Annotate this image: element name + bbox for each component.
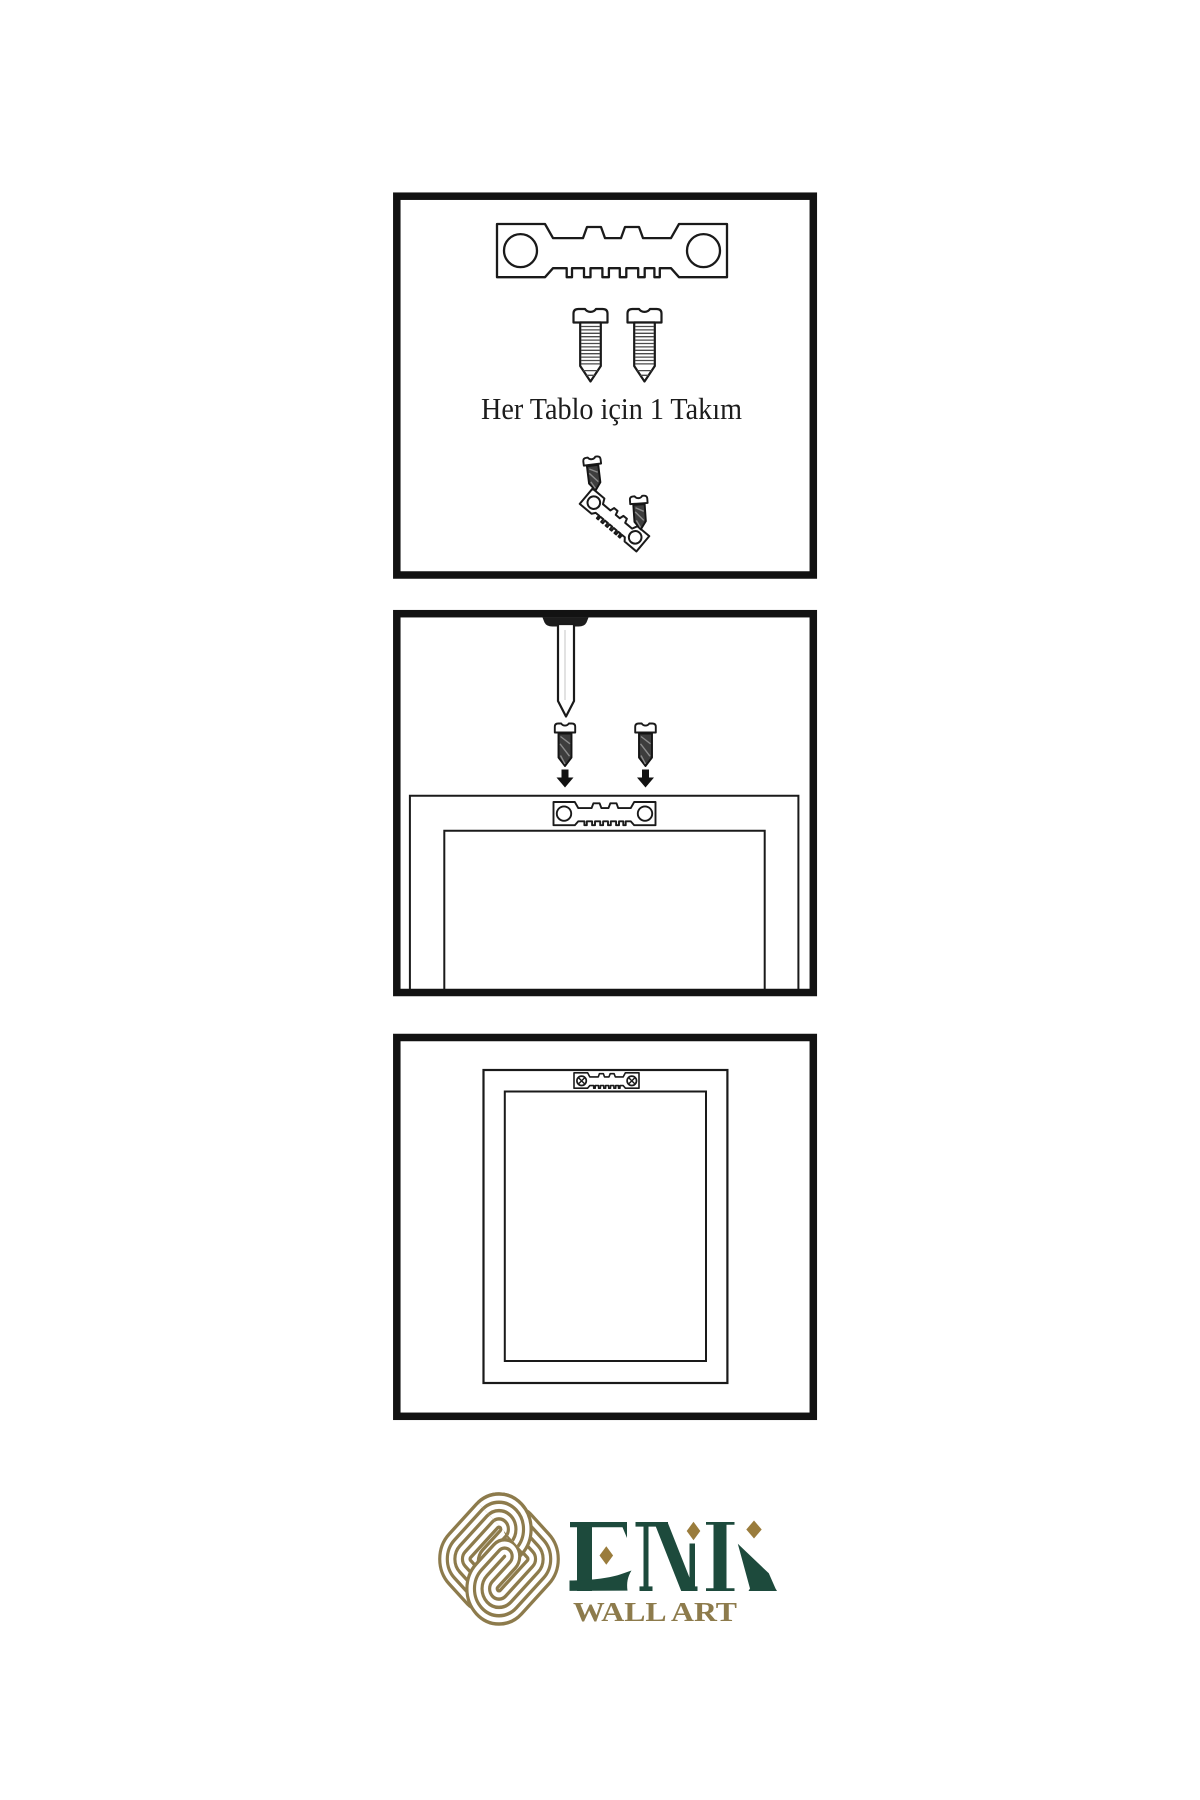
svg-text:WALL ART: WALL ART: [573, 1596, 737, 1627]
svg-text:Her Tablo için 1 Takım: Her Tablo için 1 Takım: [481, 391, 742, 426]
